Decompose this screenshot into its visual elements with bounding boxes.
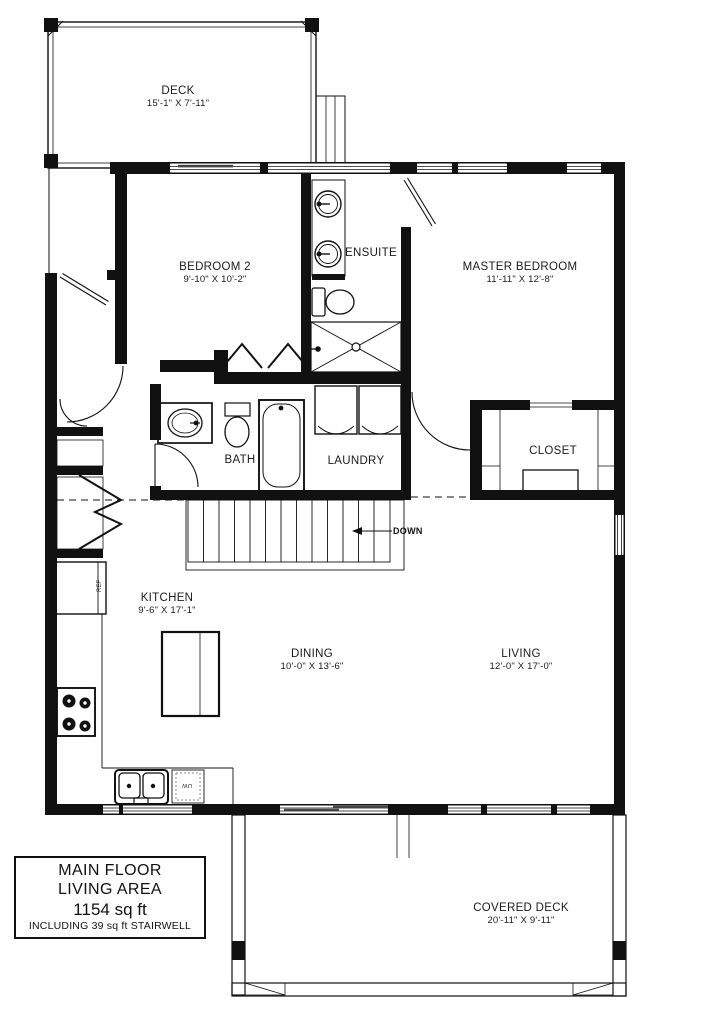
bedroom2-name: BEDROOM 2 xyxy=(179,261,251,273)
dryer xyxy=(359,386,401,434)
covered-deck-name: COVERED DECK xyxy=(473,902,569,914)
stove xyxy=(57,688,95,736)
ensuite-shower xyxy=(311,322,401,372)
room-label-bath: BATH xyxy=(224,454,255,466)
hall-cabinet xyxy=(57,440,103,466)
kitchen-name: KITCHEN xyxy=(138,592,196,604)
deck-name: DECK xyxy=(147,85,209,97)
kitchen-dims: 9'-6" X 17'-1" xyxy=(138,605,196,616)
bath-vanity-sink xyxy=(158,403,212,443)
right-wall-window xyxy=(616,515,624,555)
info-line-4: INCLUDING 39 sq ft STAIRWELL xyxy=(16,920,204,933)
room-label-bedroom2: BEDROOM 2 9'-10" X 10'-2" xyxy=(179,261,251,285)
dining-name: DINING xyxy=(280,648,343,660)
ensuite-name: ENSUITE xyxy=(345,247,397,259)
ensuite-vanity xyxy=(312,180,345,280)
bottom-wall-windows xyxy=(103,805,590,814)
room-label-deck: DECK 15'-1" X 7'-11" xyxy=(147,85,209,109)
bedroom2-dims: 9'-10" X 10'-2" xyxy=(179,274,251,285)
doors xyxy=(60,178,572,487)
deck-stairs xyxy=(316,96,345,166)
room-label-living: LIVING 12'-0" X 17'-0" xyxy=(489,648,552,672)
bifold-doors-hall xyxy=(57,475,121,549)
master-bedroom-dims: 11'-11" X 12'-8" xyxy=(463,274,578,285)
bifold-doors-bedroom2 xyxy=(222,344,308,368)
dishwasher-label: DW xyxy=(182,782,192,788)
info-line-3: 1154 sq ft xyxy=(16,899,204,920)
bath-toilet xyxy=(225,403,250,447)
washer xyxy=(315,386,357,434)
info-line-1: MAIN FLOOR xyxy=(16,861,204,880)
bath-name: BATH xyxy=(224,454,255,466)
covered-deck-dims: 20'-11" X 9'-11" xyxy=(473,915,569,926)
room-label-ensuite: ENSUITE xyxy=(345,247,397,259)
room-label-kitchen: KITCHEN 9'-6" X 17'-1" xyxy=(138,592,196,616)
double-sink xyxy=(115,770,168,804)
deck-outline xyxy=(44,18,319,273)
living-dims: 12'-0" X 17'-0" xyxy=(489,661,552,672)
room-label-master-bedroom: MASTER BEDROOM 11'-11" X 12'-8" xyxy=(463,261,578,285)
bathtub xyxy=(259,400,304,492)
room-label-closet: CLOSET xyxy=(529,445,577,457)
stairs xyxy=(186,500,404,570)
master-bedroom-name: MASTER BEDROOM xyxy=(463,261,578,273)
kitchen-island xyxy=(162,632,219,716)
closet-name: CLOSET xyxy=(529,445,577,457)
room-label-dining: DINING 10'-0" X 13'-6" xyxy=(280,648,343,672)
laundry-name: LAUNDRY xyxy=(328,455,385,467)
living-name: LIVING xyxy=(489,648,552,660)
room-label-covered-deck: COVERED DECK 20'-11" X 9'-11" xyxy=(473,902,569,926)
down-arrow-icon xyxy=(352,527,392,535)
dining-dims: 10'-0" X 13'-6" xyxy=(280,661,343,672)
down-label: DOWN xyxy=(393,526,423,536)
deck-dims: 15'-1" X 7'-11" xyxy=(147,98,209,109)
info-line-2: LIVING AREA xyxy=(16,880,204,899)
area-info-box: MAIN FLOOR LIVING AREA 1154 sq ft INCLUD… xyxy=(14,856,206,939)
ensuite-toilet xyxy=(312,288,354,316)
floor-plan: DECK 15'-1" X 7'-11" BEDROOM 2 9'-10" X … xyxy=(0,0,726,1024)
room-label-laundry: LAUNDRY xyxy=(328,455,385,467)
refrigerator-label: REF xyxy=(97,580,103,592)
